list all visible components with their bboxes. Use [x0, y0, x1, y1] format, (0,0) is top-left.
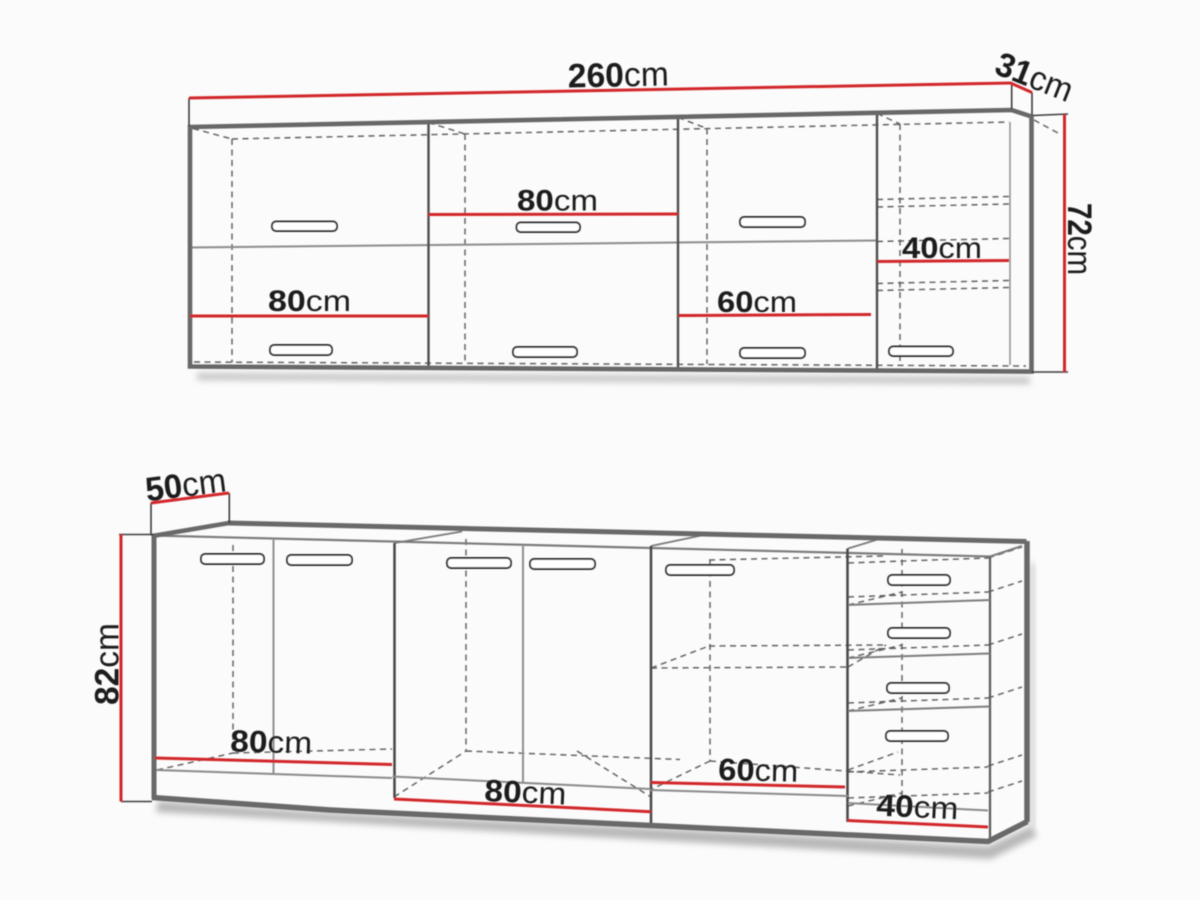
svg-text:72cm: 72cm	[1060, 203, 1098, 275]
svg-text:260cm: 260cm	[567, 55, 669, 95]
svg-text:80cm: 80cm	[268, 285, 351, 318]
svg-text:40cm: 40cm	[876, 788, 960, 827]
svg-text:82cm: 82cm	[89, 623, 127, 705]
svg-text:60cm: 60cm	[718, 752, 799, 789]
svg-text:80cm: 80cm	[484, 773, 567, 812]
svg-text:60cm: 60cm	[717, 286, 797, 319]
svg-text:40cm: 40cm	[902, 232, 982, 265]
svg-text:80cm: 80cm	[517, 185, 598, 218]
svg-text:80cm: 80cm	[230, 724, 313, 761]
